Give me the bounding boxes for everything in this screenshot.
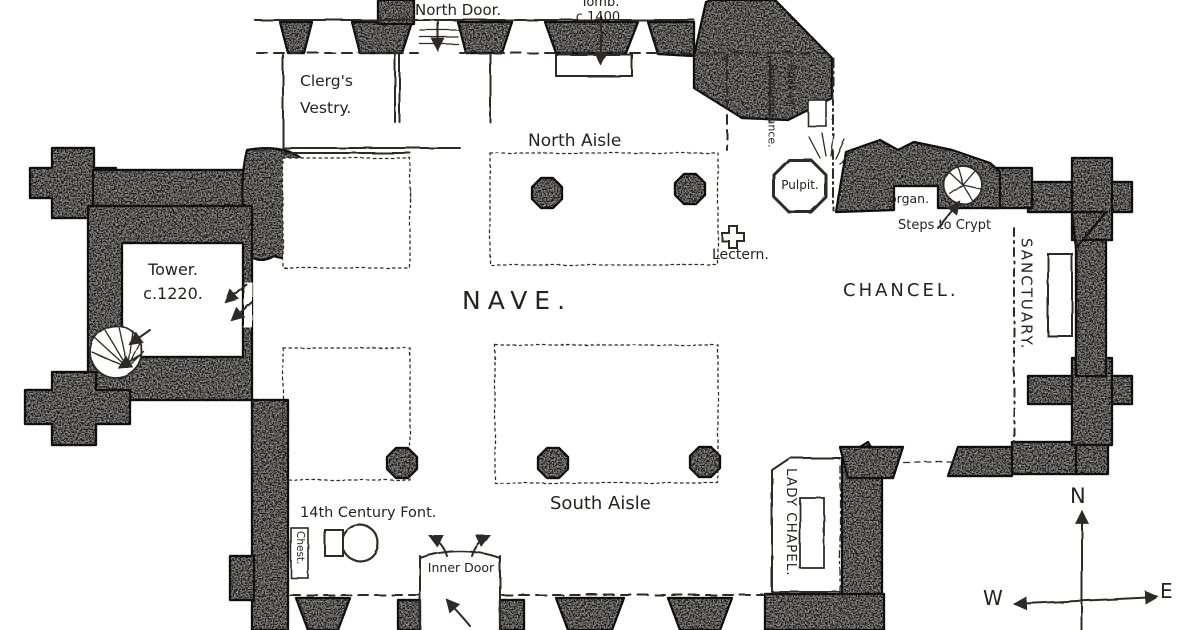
plan-linework [90, 20, 1157, 630]
floor-plan-drawing [0, 0, 1200, 630]
floor-plan-page: North Door. Tomb. c.1400. Clerg's Vestry… [0, 0, 1200, 630]
wall-masses [25, 0, 1132, 630]
